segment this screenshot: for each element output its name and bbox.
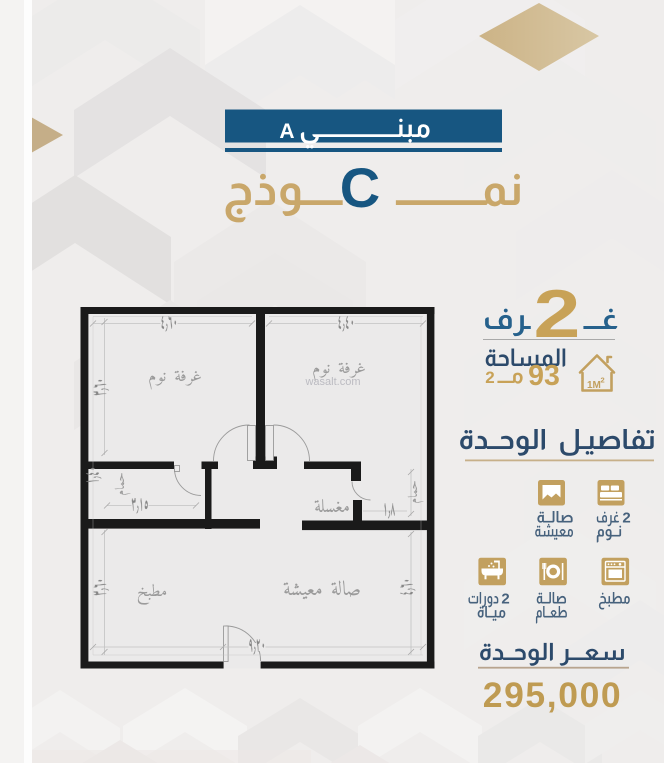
svg-text:2: 2: [501, 591, 509, 608]
svg-text:2: 2: [485, 368, 494, 387]
svg-text:wasalt.com: wasalt.com: [304, 376, 360, 388]
svg-text:C: C: [340, 156, 380, 219]
svg-text:93: 93: [528, 360, 560, 392]
svg-text:A: A: [279, 120, 294, 143]
svg-text:2: 2: [601, 376, 605, 385]
svg-text:2: 2: [622, 510, 630, 527]
svg-text:2: 2: [534, 277, 581, 352]
svg-text:295,000: 295,000: [483, 675, 623, 715]
svg-text:1M: 1M: [587, 380, 601, 391]
